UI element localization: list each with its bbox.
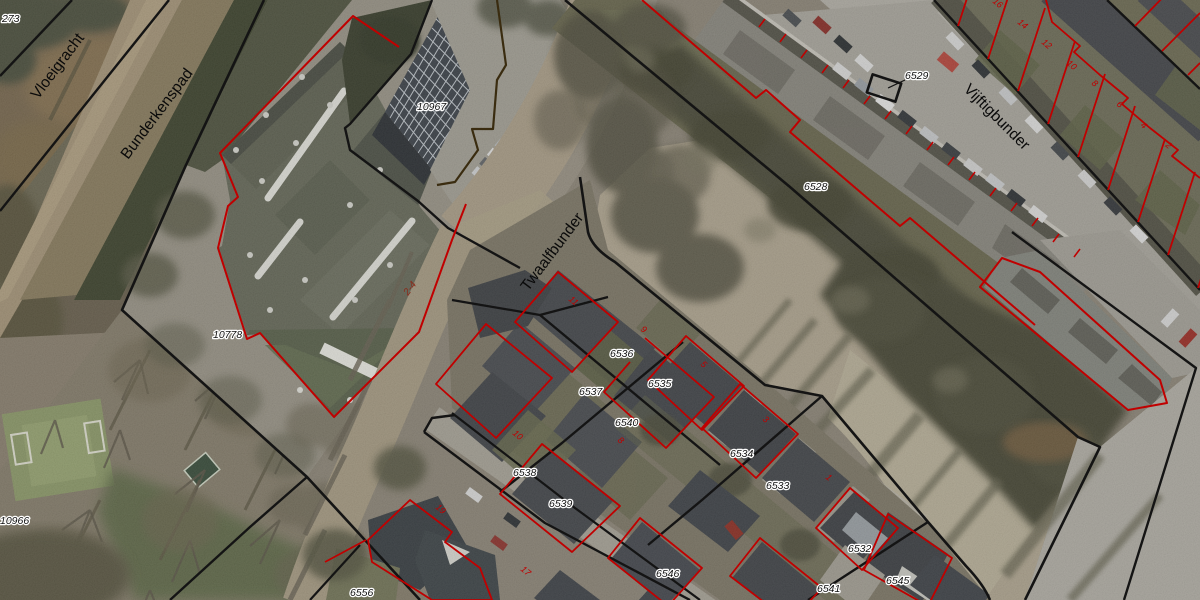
svg-text:6539: 6539 [549,498,573,510]
svg-text:6541: 6541 [817,583,840,595]
svg-text:6536: 6536 [610,348,634,360]
svg-text:6528: 6528 [804,181,828,193]
svg-text:10967: 10967 [417,101,447,113]
svg-text:6533: 6533 [766,480,790,492]
svg-text:10966: 10966 [0,515,29,527]
svg-text:10778: 10778 [213,329,242,341]
svg-text:6535: 6535 [648,378,672,390]
svg-text:6529: 6529 [905,70,929,82]
svg-text:273: 273 [1,13,20,25]
svg-text:6538: 6538 [513,467,537,479]
svg-text:6545: 6545 [886,575,910,587]
svg-text:6534: 6534 [730,448,754,460]
svg-text:6556: 6556 [350,587,374,599]
svg-text:6546: 6546 [656,568,680,580]
svg-text:6537: 6537 [579,386,604,398]
svg-text:6532: 6532 [848,543,872,555]
svg-text:6540: 6540 [615,417,639,429]
